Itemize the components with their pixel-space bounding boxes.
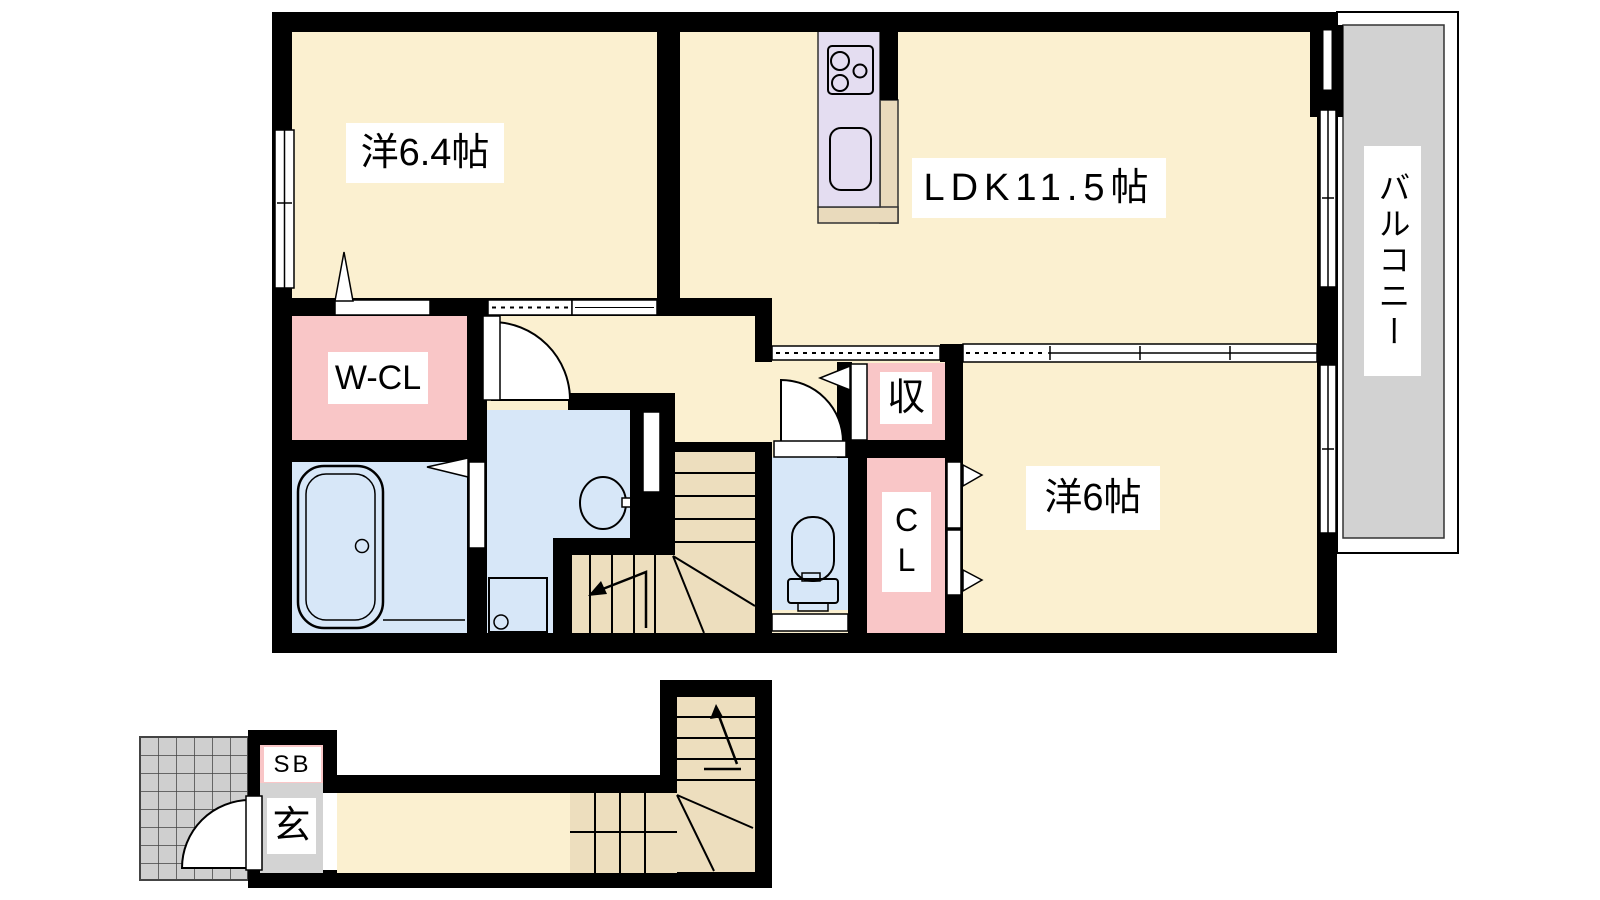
closet-door-top [947,462,961,528]
lower-hallway [337,793,570,873]
floor-plan: 洋6.4帖 LDK11.5帖 洋6帖 W-CL 収 CL バルコニー SB 玄 [0,0,1600,900]
washroom-door-leaf [483,316,500,400]
room-label-western-64: 洋6.4帖 [346,123,504,183]
window-west [275,130,294,288]
room-label-storage: 収 [880,372,932,424]
toilet-room [772,457,848,610]
storage-door [851,364,867,440]
entrance-inner-opening [323,793,337,870]
room-label-shoe-box: SB [264,747,321,782]
entrance-door-leaf [246,796,262,870]
floor-plan-drawing [0,0,1600,900]
ldk-opening [772,346,940,360]
room-label-closet: CL [882,492,931,592]
washroom-side-door [643,412,660,492]
room-label-walk-in-closet: W-CL [328,352,428,404]
window-balcony-ldk [1320,110,1336,287]
upper-floor-plan [272,12,1458,653]
lower-floor-plan [140,680,772,888]
room-label-ldk: LDK11.5帖 [912,158,1166,218]
room-label-balcony: バルコニー [1364,146,1421,376]
bathroom [292,462,467,633]
wcl-door [335,300,430,315]
window-toilet [772,614,848,631]
bath-door [469,462,485,548]
room-label-western-6: 洋6帖 [1026,466,1160,530]
room64-sliding-door [488,300,657,315]
ldk-room6-sliding-doors [963,344,1317,362]
window-slit-ldk [1323,30,1332,90]
closet-door-bottom [947,530,961,595]
room-label-entrance: 玄 [267,798,316,854]
window-balcony-room6 [1320,365,1336,533]
toilet-door-leaf [774,441,846,457]
